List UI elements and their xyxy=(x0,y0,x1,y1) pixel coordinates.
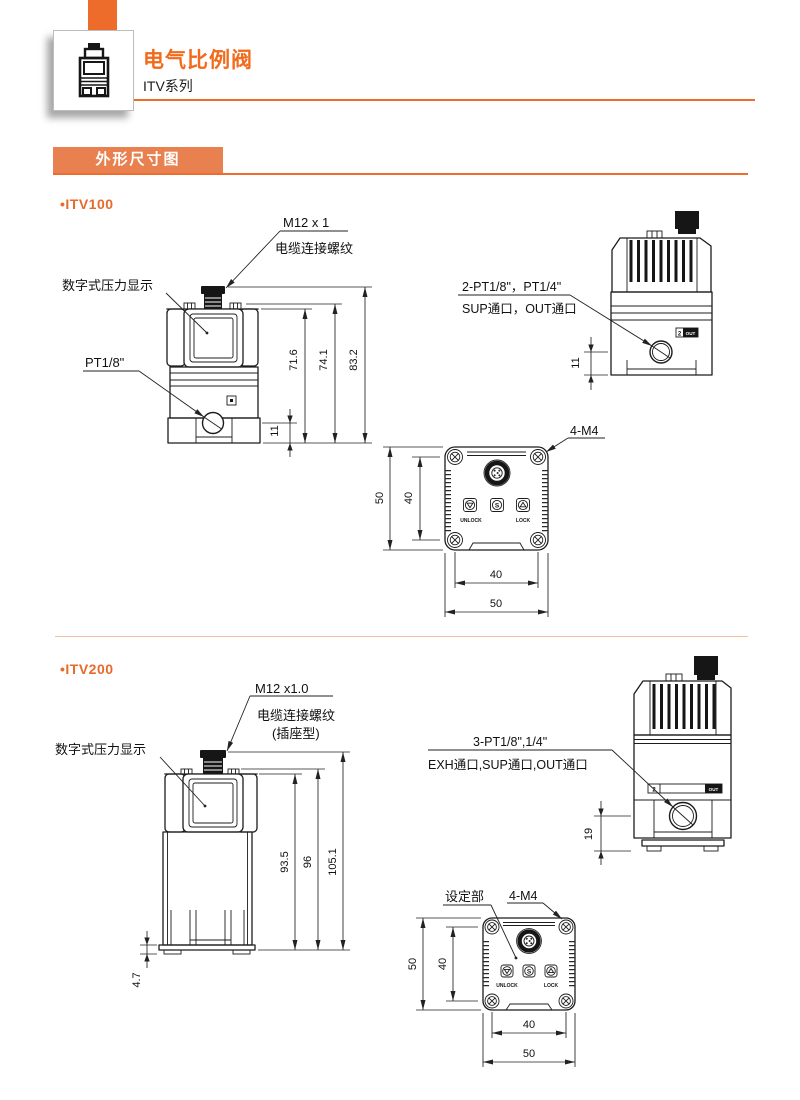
set-button-letter: S xyxy=(495,503,500,510)
itv200-dim-19: 19 xyxy=(583,828,595,840)
itv100-side-view: 2 OUT 2-PT1/8"，PT1/4" SUP通口，OUT通口 11 xyxy=(458,211,712,390)
connector-socket-icon xyxy=(484,460,510,486)
itv100-display-label: 数字式压力显示 xyxy=(62,278,153,293)
itv200-lock-label: LOCK xyxy=(544,983,559,989)
itv200-side-ports-label: 3-PT1/8",1/4" xyxy=(473,735,547,749)
itv200-tag-out: OUT xyxy=(709,787,719,792)
itv200-dim-105-1: 105.1 xyxy=(327,848,339,876)
itv200-screws-label: 4-M4 xyxy=(509,889,538,903)
itv200-top-view: S UNLOCK LOCK 设定部 4-M4 50 40 40 50 xyxy=(407,889,575,1067)
itv100-thread-desc-label: 电缆连接螺纹 xyxy=(275,241,353,256)
itv100-top-view: S UNLOCK LOCK 4-M4 50 40 40 50 xyxy=(374,424,605,617)
itv200-dim-96: 96 xyxy=(302,856,314,868)
itv200-top-dim-50h: 50 xyxy=(523,1048,535,1060)
itv100-dim-71-6: 71.6 xyxy=(288,349,300,370)
itv100-tag-out: OUT xyxy=(686,331,696,336)
itv100-port-label: PT1/8" xyxy=(85,355,125,370)
itv200-dim-4-7: 4.7 xyxy=(131,972,143,987)
itv200-side-ports-desc: EXH通口,SUP通口,OUT通口 xyxy=(428,758,588,772)
itv200-top-dim-40h: 40 xyxy=(523,1019,535,1031)
itv200-display-label: 数字式压力显示 xyxy=(55,742,146,757)
itv200-thread-type-label: (插座型) xyxy=(272,726,320,741)
connector-socket-icon xyxy=(517,929,542,954)
itv100-dim-83-2: 83.2 xyxy=(348,349,360,370)
itv100-side-ports-desc: SUP通口，OUT通口 xyxy=(462,302,577,316)
itv200-side-view: 2 OUT 3-PT1/8",1/4" EXH通口,SUP通口,OUT通口 19 xyxy=(428,656,731,865)
itv100-thread-label: M12 x 1 xyxy=(283,215,329,230)
dimension-drawings: M12 x 1 电缆连接螺纹 数字式压力显示 PT1/8" 71.6 74.1 … xyxy=(0,0,800,1100)
down-button-icon xyxy=(464,499,477,512)
itv200-front-view: M12 x1.0 电缆连接螺纹 (插座型) 数字式压力显示 93.5 96 10… xyxy=(55,681,350,988)
itv200-setting-label: 设定部 xyxy=(445,889,484,904)
itv200-unlock-label: UNLOCK xyxy=(496,983,518,989)
itv100-front-view: M12 x 1 电缆连接螺纹 数字式压力显示 PT1/8" 71.6 74.1 … xyxy=(62,215,372,457)
itv100-top-dim-40h: 40 xyxy=(490,569,502,581)
set-button-letter: S xyxy=(527,968,532,975)
down-button-icon xyxy=(501,965,513,977)
itv100-dim-11-side: 11 xyxy=(570,357,582,368)
itv100-lock-label: LOCK xyxy=(516,518,531,524)
itv100-tag-2: 2 xyxy=(678,331,682,337)
set-button-icon: S xyxy=(523,965,535,977)
itv100-unlock-label: UNLOCK xyxy=(460,518,482,524)
itv200-top-dim-40v: 40 xyxy=(437,958,449,970)
up-button-icon xyxy=(517,499,530,512)
itv100-top-dim-40v: 40 xyxy=(403,492,415,504)
itv100-screws-label: 4-M4 xyxy=(570,424,599,438)
itv100-dim-74-1: 74.1 xyxy=(318,349,330,370)
up-button-icon xyxy=(545,965,557,977)
itv100-dim-11-front: 11 xyxy=(269,425,281,436)
itv100-side-ports-label: 2-PT1/8"，PT1/4" xyxy=(462,280,561,294)
itv100-top-dim-50h: 50 xyxy=(490,598,502,610)
itv200-thread-desc-label: 电缆连接螺纹 xyxy=(257,708,335,723)
itv200-dim-93-5: 93.5 xyxy=(279,851,291,872)
itv200-thread-label: M12 x1.0 xyxy=(255,681,308,696)
itv100-top-dim-50v: 50 xyxy=(374,492,386,504)
valve-icon xyxy=(73,42,115,100)
itv200-top-dim-50v: 50 xyxy=(407,958,419,970)
product-icon-box xyxy=(53,30,134,111)
set-button-icon: S xyxy=(491,499,504,512)
